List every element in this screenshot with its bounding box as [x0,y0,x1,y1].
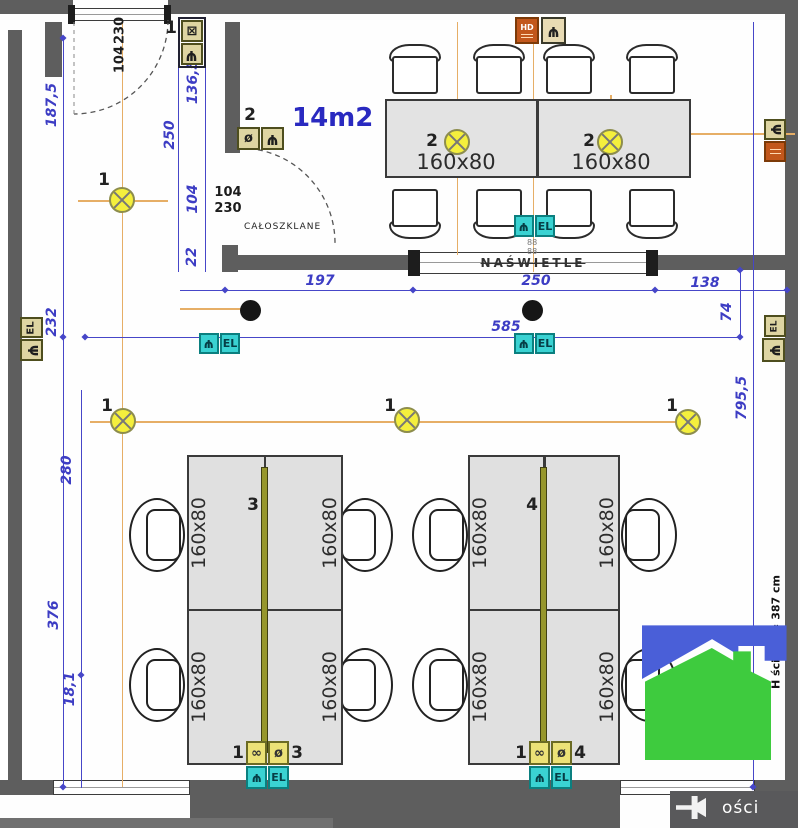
double-socket-glyph: ∞ [534,747,545,760]
socket-glyph: Ψ [267,132,278,145]
ceiling-light-icon [109,187,135,213]
desk-size-label: 160x80 [319,651,341,723]
junction-point-icon [240,300,261,321]
switch-icon: ø [551,741,572,765]
door-height: 230 [113,17,128,44]
socket-glyph: Ψ [186,48,197,61]
el-label: EL [770,320,779,332]
el-label: EL [538,338,553,349]
socket-glyph: Ψ [768,124,781,135]
double-socket-glyph: ∞ [251,747,262,760]
desk-screen-divider [540,467,547,753]
watermark-text: ości [722,798,759,818]
el-label: EL [271,772,286,783]
ceiling-light-icon [394,407,420,433]
socket-glyph: Ψ [204,338,213,349]
light-group-label: 2 [583,131,595,151]
desk-screen-divider [261,467,268,753]
media-socket-icon [764,141,786,162]
floor-socket-icon: Ψ [514,333,534,354]
desk-group-label: 3 [247,495,259,515]
office-chair [337,498,393,572]
floor-el-box-icon: EL [220,333,240,354]
light-group-label: 1 [384,396,396,416]
desk-size-label: 160x80 [596,497,618,569]
door-width: 104 [214,185,241,201]
floor-socket-icon: Ψ [514,215,534,237]
floor-plan: NAŚWIETLE 187,5 232 280 376 18,1 136,5 2… [0,0,800,828]
office-chair [129,498,185,572]
hdmi-socket-icon: HD [515,17,539,44]
desk-size-label: 160x80 [188,651,210,723]
office-chair [129,648,185,722]
glass-door-note: CAŁOSZKLANE [244,222,321,232]
small-dim: 88 [527,238,537,247]
wall-socket-icon: Ψ [261,127,284,150]
circuit-label: 1 [515,743,527,763]
ceiling-light-icon [675,409,701,435]
chair [473,44,525,94]
small-dim-stack: 88 88 [527,238,537,256]
floor-el-box-icon: EL [551,766,572,789]
floor-el-box-icon: EL [268,766,289,789]
el-label: EL [538,221,553,232]
office-chair [337,648,393,722]
crossed-socket-icon: ⊠ [181,20,203,42]
wall-el-box-icon: EL [764,315,786,337]
el-label: EL [26,321,36,334]
wall-socket-icon: Ψ [181,43,203,65]
wall-socket-icon: Ψ [762,338,785,362]
floor-el-box-icon: EL [535,215,555,237]
hd-label: HD [520,24,533,32]
desk-size-label: 160x80 [469,497,491,569]
transom-label: NAŚWIETLE [481,256,586,270]
el-label: EL [554,772,569,783]
office-chair [412,648,468,722]
chair [626,189,678,239]
desk-group-label: 3 [291,743,303,763]
wall-socket-icon: Ψ [20,339,43,361]
crossed-box-glyph: ⊠ [187,25,198,38]
table-size-label: 160x80 [416,150,495,174]
office-chair [412,498,468,572]
switch-icon: ø [268,741,289,765]
switch-group-label: 2 [244,105,256,125]
light-group-label: 1 [666,396,678,416]
wall-socket-icon: Ψ [764,119,786,140]
top-door-size-label: 104 230 [113,17,128,73]
double-socket-icon: ∞ [246,741,267,765]
el-label: EL [223,338,238,349]
chair [626,44,678,94]
socket-glyph: Ψ [25,344,38,355]
wall-el-box-icon: EL [20,317,43,338]
ceiling-light-icon [110,408,136,434]
light-group-label: 1 [98,170,110,190]
socket-glyph: Ψ [535,772,544,783]
chair [389,44,441,94]
floor-el-box-icon: EL [535,333,555,354]
desk-size-label: 160x80 [596,651,618,723]
double-socket-icon: ∞ [529,741,550,765]
floor-socket-icon: Ψ [246,766,267,789]
switch-glyph: ø [557,747,566,760]
desk-size-label: 160x80 [469,651,491,723]
light-group-label: 2 [426,131,438,151]
circuit-label: 1 [232,743,244,763]
table-size-label: 160x80 [571,150,650,174]
room-area-label: 14m2 [292,103,373,133]
floor-socket-icon: Ψ [199,333,219,354]
switch-icon: ø [237,127,260,150]
circuit-label: 1 [165,18,177,38]
door-height: 230 [214,201,241,217]
socket-glyph: Ψ [519,221,528,232]
desk-group-label: 4 [526,495,538,515]
desk-size-label: 160x80 [319,497,341,569]
desk-group-label: 4 [574,743,586,763]
chair [389,189,441,239]
glass-door-size-label: 104 230 [214,185,241,217]
floor-socket-icon: Ψ [529,766,550,789]
small-dim: 88 [527,247,537,256]
office-chair [621,498,677,572]
switch-glyph: ø [274,747,283,760]
socket-icon: Ψ [541,17,566,44]
junction-point-icon [522,300,543,321]
socket-glyph: Ψ [548,24,559,37]
switch-glyph: ø [244,132,253,145]
socket-glyph: Ψ [767,344,780,355]
chair [543,44,595,94]
socket-glyph: Ψ [252,772,261,783]
socket-glyph: Ψ [519,338,528,349]
desk-size-label: 160x80 [188,497,210,569]
door-width: 104 [113,46,128,73]
